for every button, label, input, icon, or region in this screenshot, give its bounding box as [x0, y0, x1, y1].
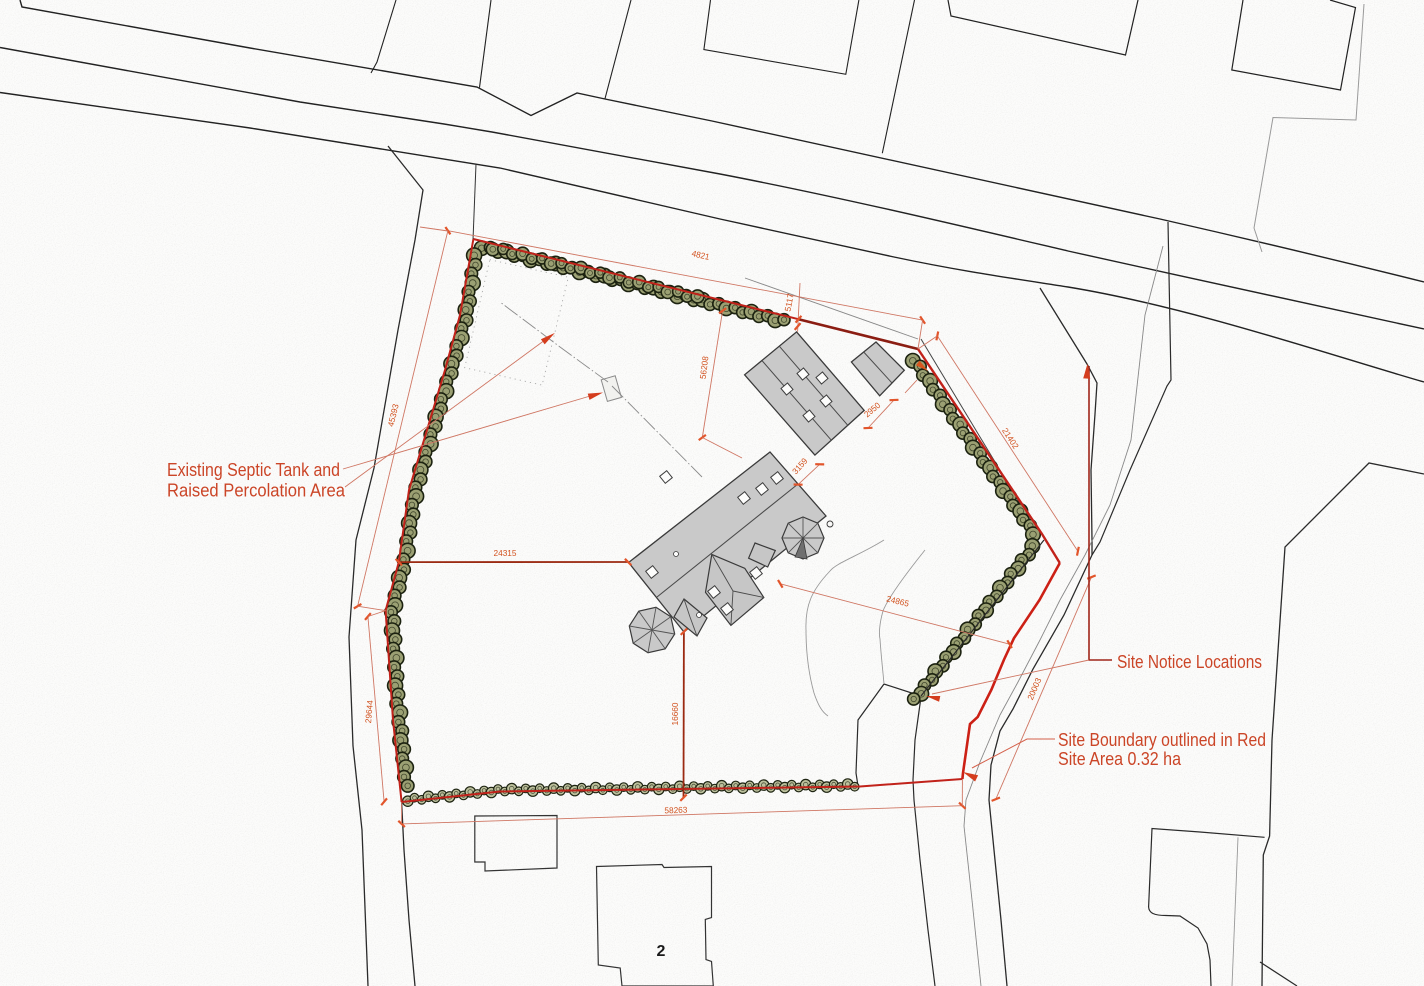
- svg-text:Site Area 0.32 ha: Site Area 0.32 ha: [1058, 749, 1182, 769]
- svg-text:Raised Percolation Area: Raised Percolation Area: [167, 480, 346, 501]
- svg-text:Site Boundary outlined in Red: Site Boundary outlined in Red: [1058, 730, 1266, 750]
- svg-text:16660: 16660: [670, 702, 680, 725]
- svg-text:Existing Septic Tank and: Existing Septic Tank and: [167, 459, 340, 480]
- svg-text:24315: 24315: [494, 548, 517, 558]
- svg-text:29644: 29644: [363, 700, 375, 724]
- svg-text:2: 2: [657, 943, 666, 960]
- svg-text:Site Notice Locations: Site Notice Locations: [1117, 652, 1262, 672]
- svg-text:58263: 58263: [664, 805, 688, 816]
